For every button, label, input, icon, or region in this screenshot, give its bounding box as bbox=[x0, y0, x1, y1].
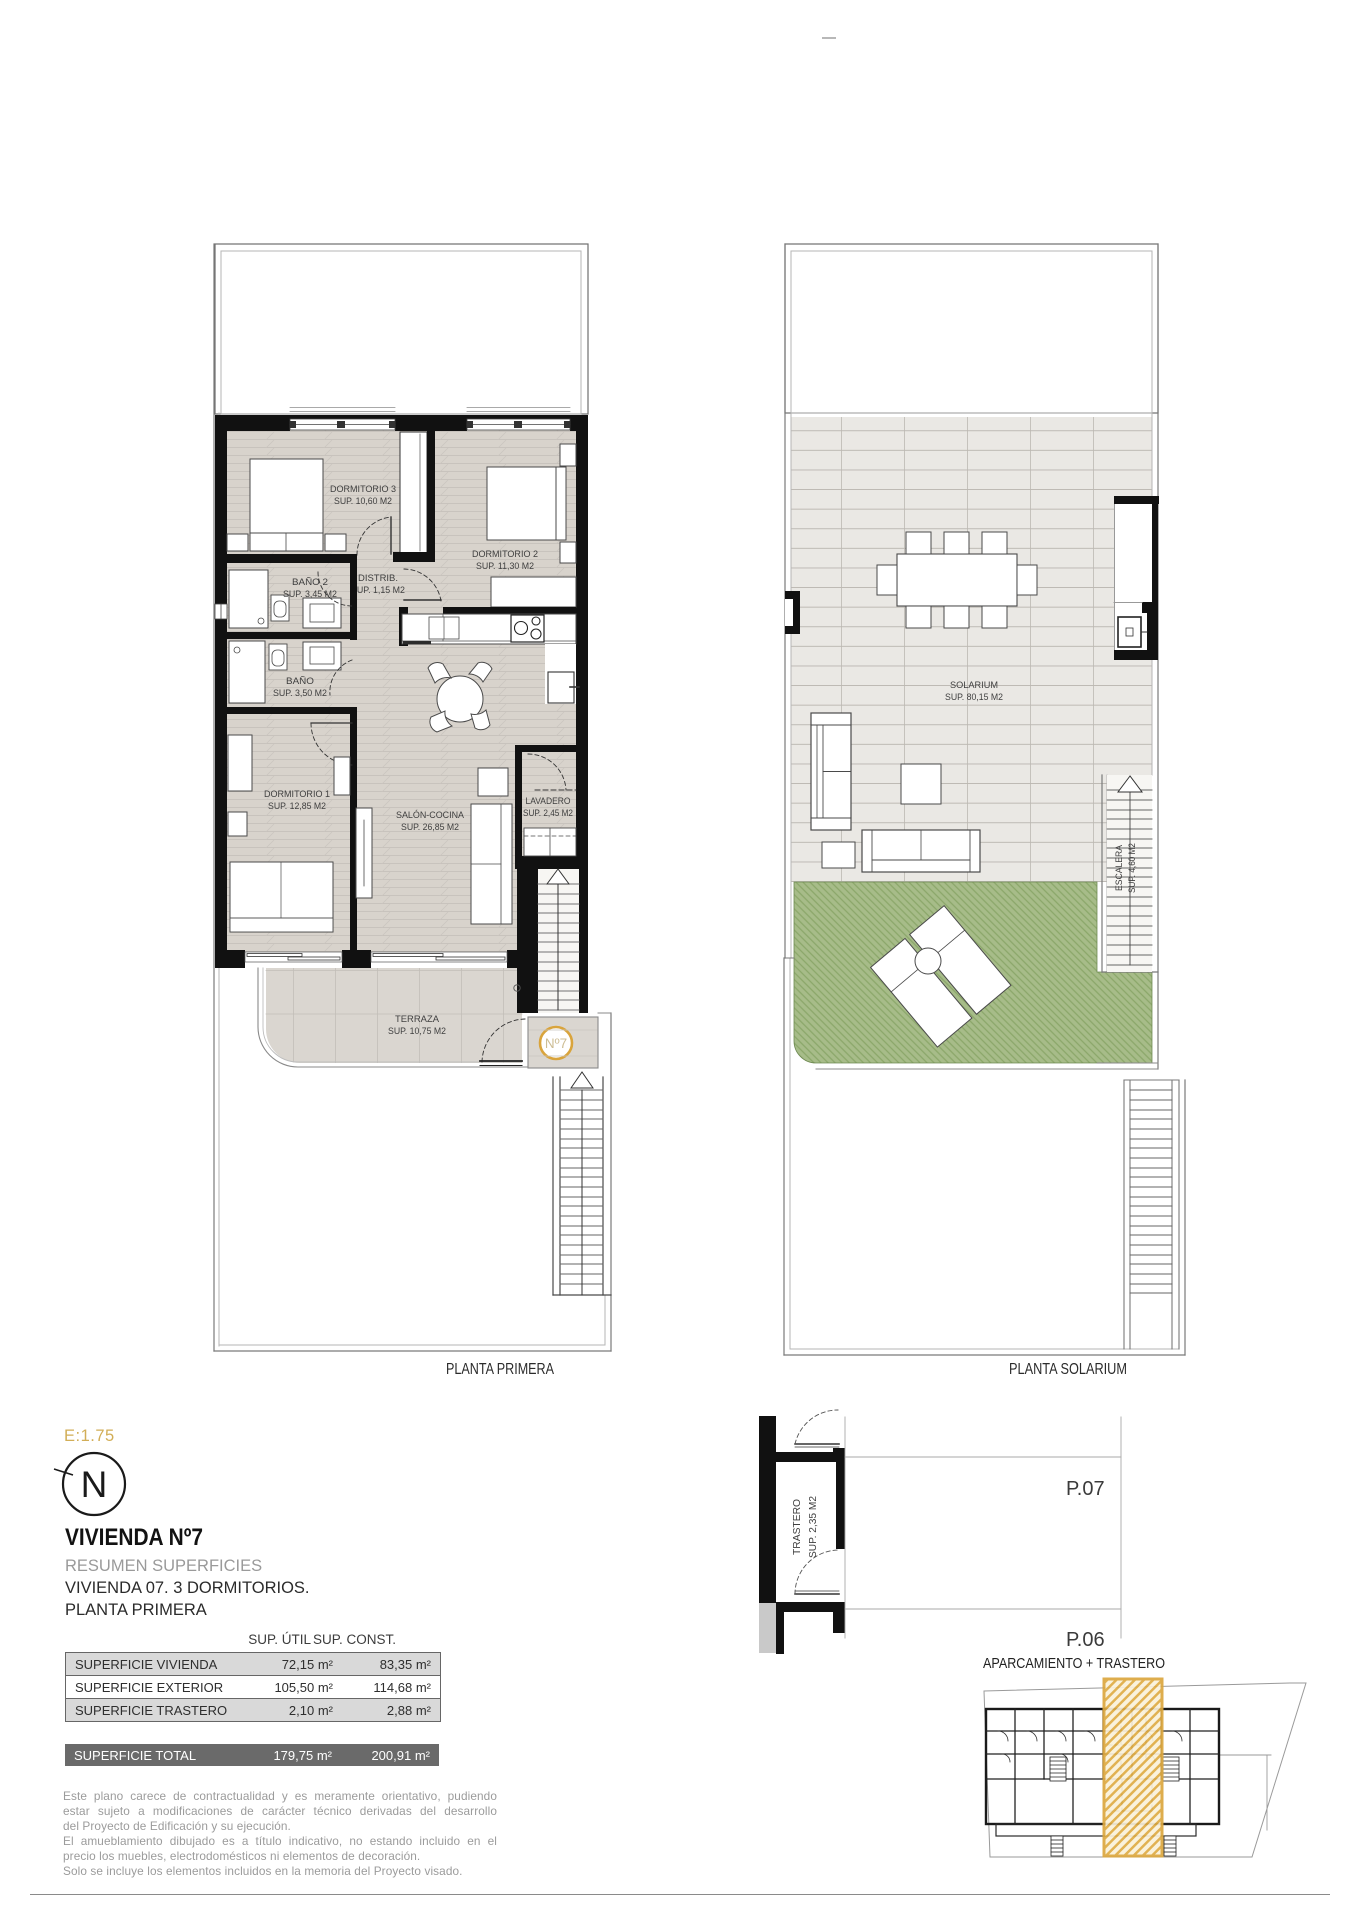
svg-text:SUP. 3,45 M2: SUP. 3,45 M2 bbox=[283, 589, 337, 600]
svg-text:APARCAMIENTO + TRASTERO: APARCAMIENTO + TRASTERO bbox=[983, 1655, 1165, 1672]
svg-text:SUP. 10,60 M2: SUP. 10,60 M2 bbox=[334, 496, 392, 507]
svg-text:SUP. 80,15 M2: SUP. 80,15 M2 bbox=[945, 692, 1003, 703]
svg-text:SUP. 10,75 M2: SUP. 10,75 M2 bbox=[388, 1026, 446, 1037]
svg-text:SUP. 12,85 M2: SUP. 12,85 M2 bbox=[268, 801, 326, 812]
svg-text:DORMITORIO 3: DORMITORIO 3 bbox=[330, 484, 396, 495]
svg-text:PLANTA SOLARIUM: PLANTA SOLARIUM bbox=[1009, 1361, 1127, 1378]
svg-text:SUP. 3,50 M2: SUP. 3,50 M2 bbox=[273, 688, 327, 699]
svg-text:SUP. 11,30 M2: SUP. 11,30 M2 bbox=[476, 561, 534, 572]
svg-text:SALÓN-COCINA: SALÓN-COCINA bbox=[396, 810, 465, 821]
svg-text:ESCALERA: ESCALERA bbox=[1114, 845, 1124, 891]
svg-text:SOLARIUM: SOLARIUM bbox=[950, 680, 998, 691]
svg-text:P.07: P.07 bbox=[1066, 1478, 1105, 1500]
svg-text:TERRAZA: TERRAZA bbox=[395, 1014, 440, 1025]
svg-text:P.06: P.06 bbox=[1066, 1629, 1105, 1651]
svg-text:N: N bbox=[81, 1464, 108, 1505]
svg-text:BAÑO 2: BAÑO 2 bbox=[292, 577, 328, 588]
svg-text:Nº7: Nº7 bbox=[545, 1036, 567, 1051]
svg-text:DORMITORIO 1: DORMITORIO 1 bbox=[264, 789, 330, 800]
svg-text:BAÑO: BAÑO bbox=[286, 676, 314, 687]
svg-text:SUP. 26,85 M2: SUP. 26,85 M2 bbox=[401, 822, 459, 833]
svg-text:SUP. 2,45 M2: SUP. 2,45 M2 bbox=[523, 808, 573, 818]
svg-text:DISTRIB.: DISTRIB. bbox=[358, 573, 398, 584]
svg-text:PLANTA PRIMERA: PLANTA PRIMERA bbox=[446, 1361, 555, 1378]
svg-text:SUP. 4,60 M2: SUP. 4,60 M2 bbox=[1127, 843, 1137, 893]
svg-text:SUP. 1,15 M2: SUP. 1,15 M2 bbox=[351, 585, 405, 596]
svg-text:DORMITORIO 2: DORMITORIO 2 bbox=[472, 549, 538, 560]
svg-text:LAVADERO: LAVADERO bbox=[526, 796, 571, 806]
svg-text:SUP. 2,35 M2: SUP. 2,35 M2 bbox=[807, 1496, 819, 1558]
svg-text:TRASTERO: TRASTERO bbox=[791, 1499, 803, 1555]
